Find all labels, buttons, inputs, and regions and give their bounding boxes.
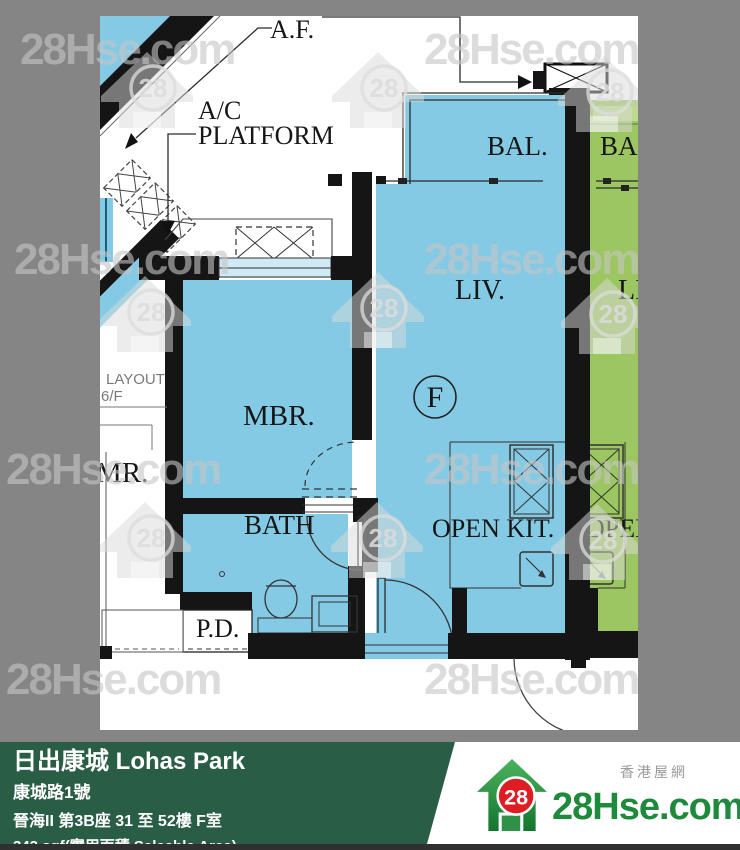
svg-text:28: 28 — [596, 77, 625, 107]
svg-text:28: 28 — [370, 73, 399, 103]
svg-text:28: 28 — [137, 297, 166, 327]
watermark-text: 28Hse.com — [424, 235, 638, 284]
watermark-text: 28Hse.com — [6, 655, 220, 704]
svg-text:28: 28 — [589, 525, 618, 555]
label-layout: LAYOUT — [106, 371, 165, 388]
watermark-text: 28Hse.com — [14, 235, 228, 284]
floorplan-image: A.F. A/C PLATFORM BAL. BAL LIV. LI F MBR… — [0, 0, 740, 742]
label-balcony: BAL. — [487, 131, 548, 161]
brand-block[interactable]: 28 28Hse.com 香港屋網 — [468, 754, 738, 842]
watermark-text: 28Hse.com — [424, 25, 638, 74]
label-floor: 6/F — [101, 388, 123, 405]
footer-bar: 日出康城 Lohas Park 康城路1號 晉海II 第3B座 31 至 52樓… — [0, 742, 740, 844]
bottom-strip — [0, 844, 740, 850]
watermark-text: 28Hse.com — [424, 445, 638, 494]
label-mbr: MBR. — [243, 400, 315, 432]
watermark-text: 28Hse.com — [6, 445, 220, 494]
floorplan-viewer: A.F. A/C PLATFORM BAL. BAL LIV. LI F MBR… — [0, 0, 740, 850]
label-pd: P.D. — [196, 614, 239, 643]
label-ac-2: PLATFORM — [198, 121, 334, 150]
label-bath: BATH — [244, 510, 315, 540]
svg-text:28: 28 — [370, 293, 399, 323]
svg-text:28: 28 — [137, 523, 166, 553]
floorplan-drawing: A.F. A/C PLATFORM BAL. BAL LIV. LI F MBR… — [74, 15, 654, 736]
label-open-kitchen: OPEN KIT. — [432, 514, 554, 543]
label-af: A.F. — [270, 15, 314, 44]
brand-logo-text[interactable]: 28Hse.com — [552, 786, 740, 829]
watermark-text: 28Hse.com — [20, 25, 234, 74]
svg-text:28: 28 — [599, 299, 628, 329]
brand-site-name: 香港屋網 — [620, 762, 688, 782]
28hse-house-logo-icon: 28 — [476, 758, 548, 832]
label-unit-letter: F — [427, 381, 444, 414]
lobby-box — [102, 610, 183, 652]
svg-text:28: 28 — [369, 523, 398, 553]
logo-badge-number: 28 — [504, 784, 528, 809]
watermark-text: 28Hse.com — [424, 655, 638, 704]
svg-text:28: 28 — [139, 73, 168, 103]
